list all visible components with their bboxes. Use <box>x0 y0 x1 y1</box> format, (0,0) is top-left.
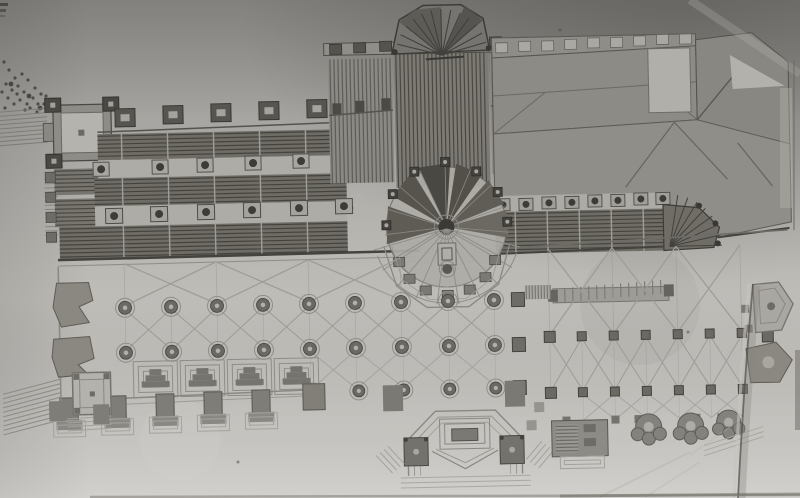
cathedral-plan-engraving <box>0 0 800 498</box>
photographed-plate <box>0 0 800 498</box>
east-roof <box>491 32 791 254</box>
